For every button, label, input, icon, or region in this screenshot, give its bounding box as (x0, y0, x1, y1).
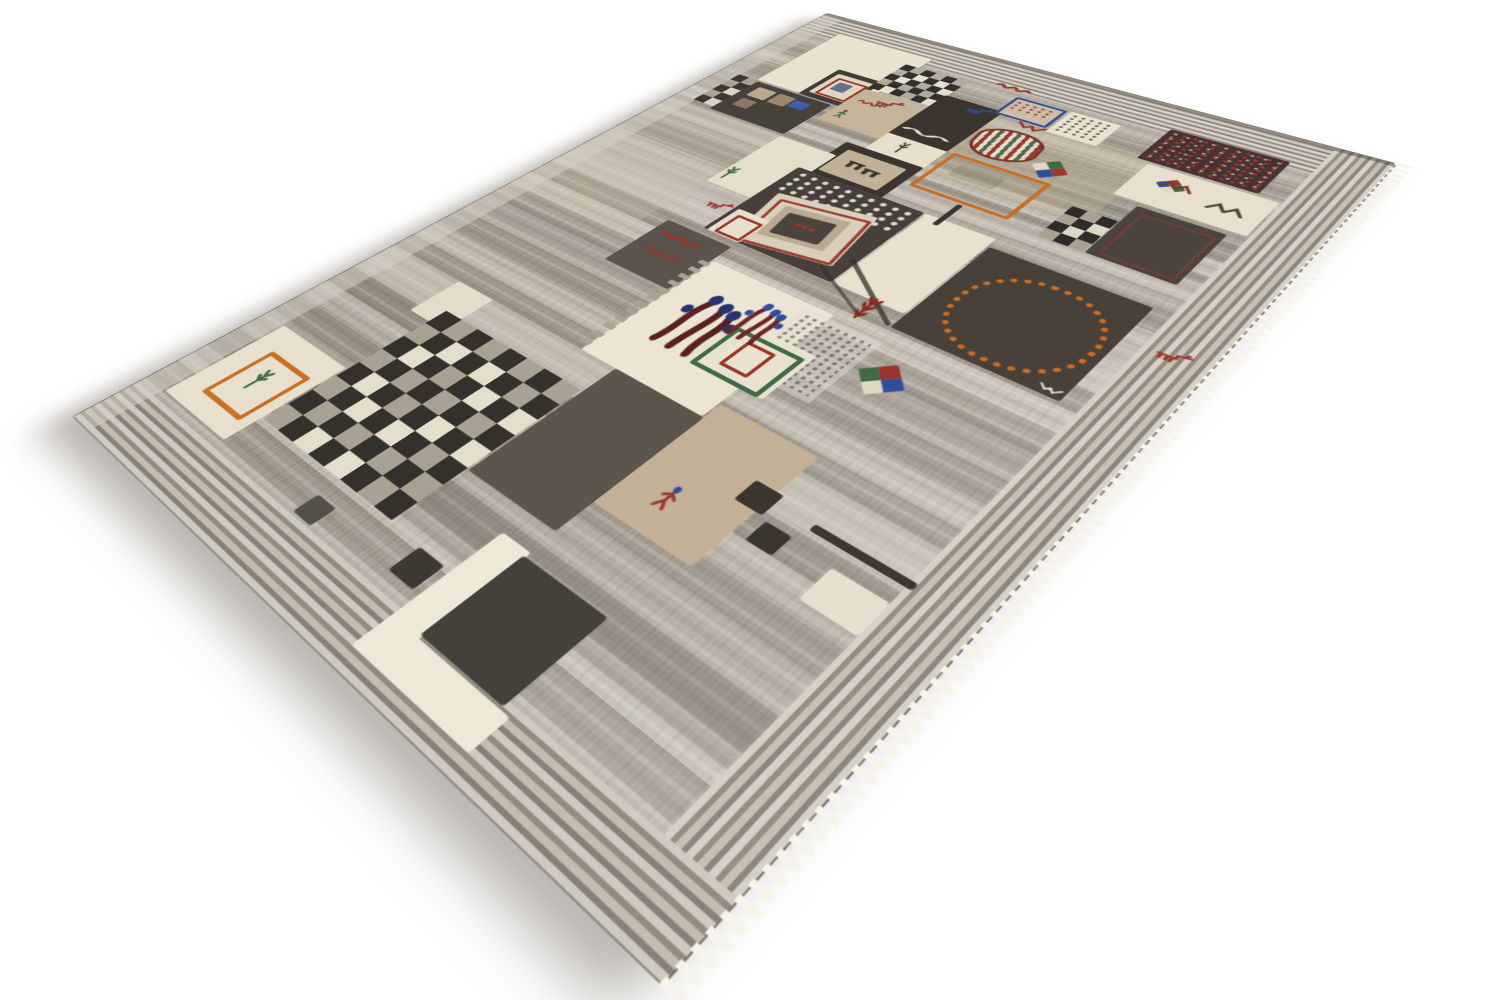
dark-chip (745, 521, 792, 556)
diamond-motif (858, 365, 905, 395)
photo-canvas (0, 0, 1500, 1000)
gabbeh-rug (72, 13, 1397, 987)
